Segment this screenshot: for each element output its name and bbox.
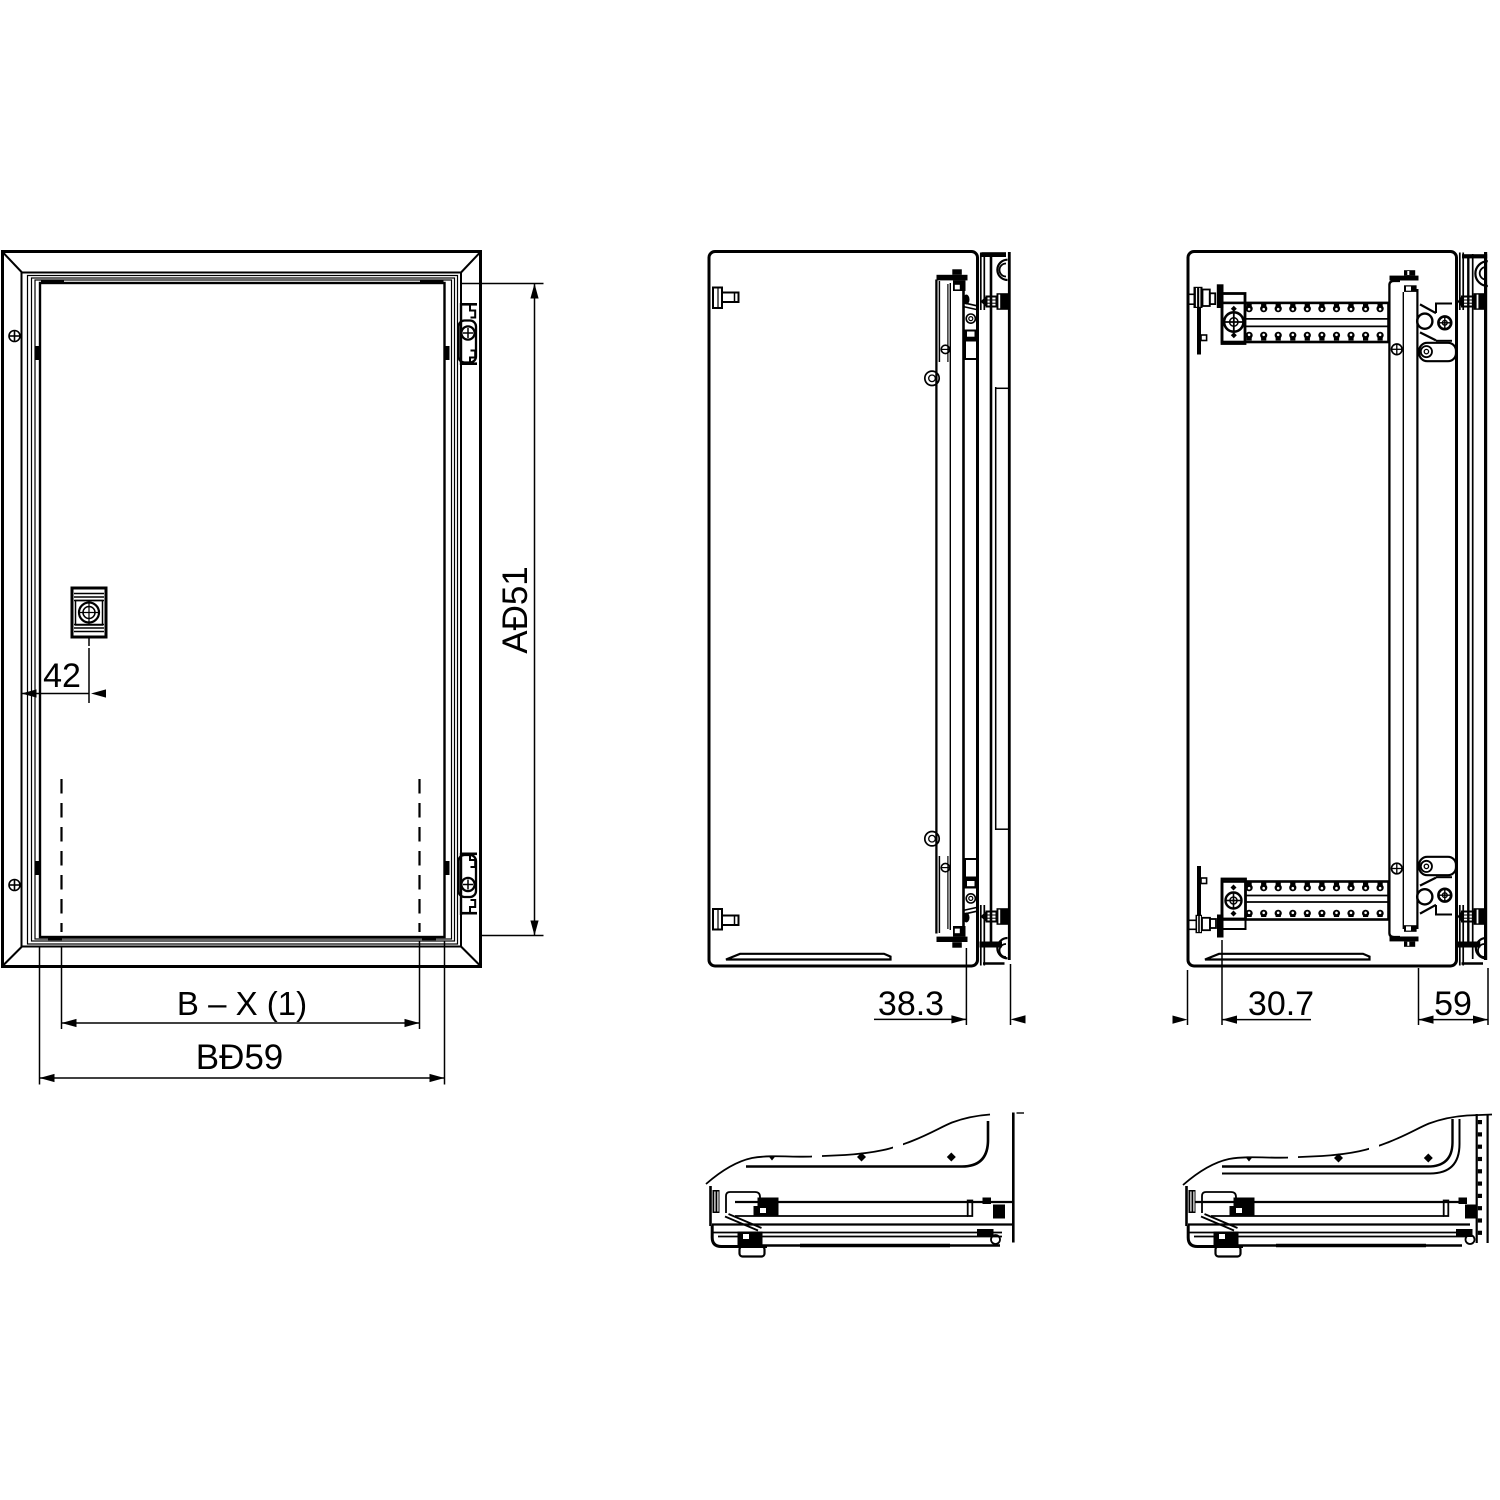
- svg-text:BÐ59: BÐ59: [196, 1038, 284, 1077]
- svg-text:59: 59: [1434, 985, 1472, 1023]
- svg-text:AÐ51: AÐ51: [496, 566, 535, 654]
- svg-text:42: 42: [43, 657, 81, 695]
- svg-text:30.7: 30.7: [1248, 985, 1314, 1023]
- svg-text:B – X (1): B – X (1): [177, 985, 307, 1022]
- svg-text:38.3: 38.3: [878, 985, 944, 1023]
